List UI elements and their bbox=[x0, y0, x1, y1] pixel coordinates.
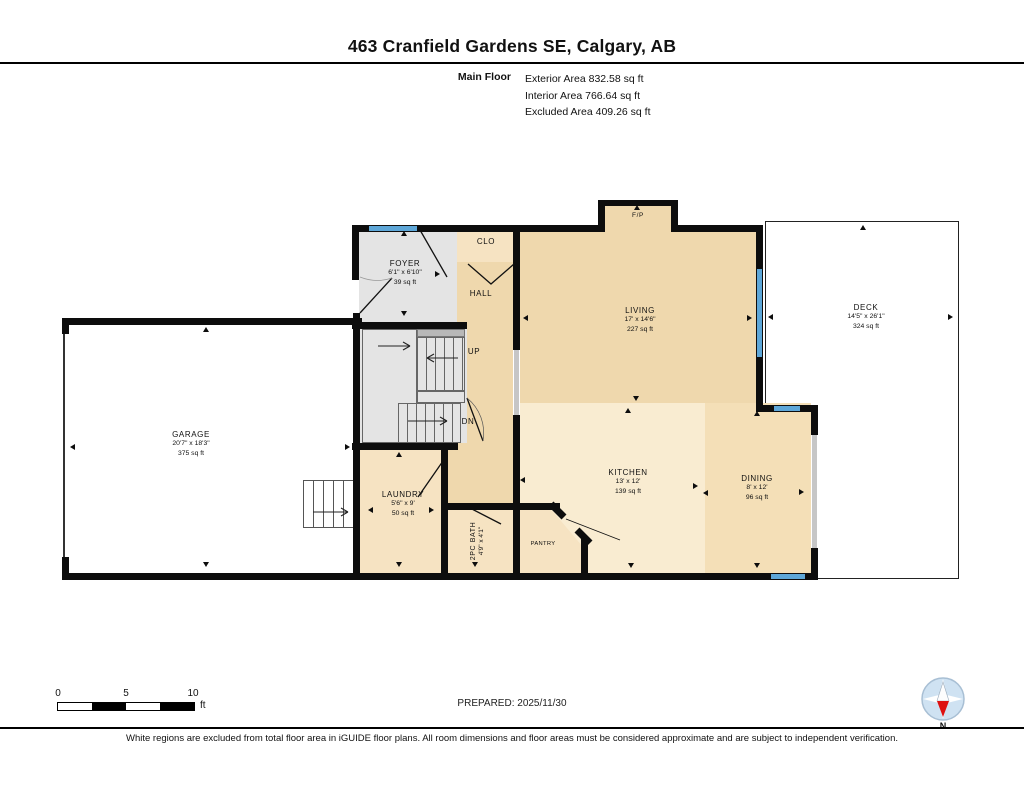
wall-segment bbox=[581, 538, 588, 573]
stair-landing-cap bbox=[417, 329, 465, 337]
dimension-arrow-icon bbox=[396, 562, 402, 567]
wall-segment bbox=[62, 557, 69, 573]
floorplan-canvas: FOYER 6'1" x 6'10" 39 sq ft CLO HALL UP … bbox=[0, 0, 1024, 791]
wall-segment bbox=[806, 573, 818, 580]
stairs-down bbox=[398, 403, 461, 443]
wall-segment bbox=[62, 318, 69, 334]
wall-segment bbox=[756, 358, 763, 412]
dimension-arrow-icon bbox=[799, 489, 804, 495]
wall-segment bbox=[513, 225, 520, 350]
stair-landing bbox=[417, 391, 465, 403]
compass: N bbox=[920, 676, 966, 734]
window-icon bbox=[770, 573, 806, 580]
dimension-arrow-icon bbox=[754, 411, 760, 416]
dimension-arrow-icon bbox=[625, 408, 631, 413]
dimension-arrow-icon bbox=[70, 444, 75, 450]
dimension-arrow-icon bbox=[520, 477, 525, 483]
room-label-kitchen: KITCHEN 13' x 12' 139 sq ft bbox=[608, 468, 647, 496]
prepared-date: PREPARED: 2025/11/30 bbox=[0, 698, 1024, 709]
dimension-arrow-icon bbox=[401, 311, 407, 316]
fireplace-label: F/P bbox=[632, 212, 644, 219]
wall-segment bbox=[443, 503, 560, 510]
compass-north-label: N bbox=[940, 721, 947, 731]
corridor-region bbox=[448, 450, 513, 503]
room-label-hall: HALL bbox=[470, 289, 492, 298]
room-label-foyer: FOYER 6'1" x 6'10" 39 sq ft bbox=[388, 259, 422, 287]
room-label-bath: 2PC BATH 4'9" x 4'1" bbox=[470, 522, 487, 561]
dimension-arrow-icon bbox=[633, 396, 639, 401]
dimension-arrow-icon bbox=[396, 452, 402, 457]
room-label-laundry: LAUNDRY 5'6" x 9' 50 sq ft bbox=[382, 490, 424, 518]
wall-segment bbox=[598, 200, 605, 232]
half-wall-railing bbox=[514, 350, 519, 415]
footer-disclaimer: White regions are excluded from total fl… bbox=[0, 733, 1024, 744]
room-label-closet: CLO bbox=[477, 237, 495, 246]
window-icon bbox=[756, 268, 763, 358]
dimension-arrow-icon bbox=[768, 314, 773, 320]
wall-segment bbox=[352, 225, 359, 280]
dimension-arrow-icon bbox=[203, 327, 209, 332]
wall-segment bbox=[678, 225, 763, 232]
stairs-up-label: UP bbox=[468, 347, 480, 356]
stairs-down-label: DN bbox=[462, 417, 475, 426]
wall-segment bbox=[756, 225, 763, 268]
room-label-dining: DINING 8' x 12' 96 sq ft bbox=[741, 474, 773, 502]
room-label-living: LIVING 17' x 14'6" 227 sq ft bbox=[624, 306, 655, 334]
dimension-arrow-icon bbox=[860, 225, 866, 230]
wall-segment bbox=[62, 573, 770, 580]
wall-segment bbox=[352, 322, 467, 329]
garage-steps bbox=[303, 480, 355, 528]
wall-segment bbox=[62, 318, 362, 325]
dimension-arrow-icon bbox=[634, 205, 640, 210]
dimension-arrow-icon bbox=[429, 507, 434, 513]
dimension-arrow-icon bbox=[435, 271, 440, 277]
window-icon bbox=[368, 225, 418, 232]
window-icon bbox=[773, 405, 801, 412]
dimension-arrow-icon bbox=[628, 563, 634, 568]
wall-segment bbox=[811, 548, 818, 573]
dimension-arrow-icon bbox=[754, 563, 760, 568]
floorplan-page: 463 Cranfield Gardens SE, Calgary, AB Ma… bbox=[0, 0, 1024, 791]
wall-segment bbox=[671, 200, 678, 232]
compass-icon bbox=[920, 676, 966, 722]
dimension-arrow-icon bbox=[523, 315, 528, 321]
room-label-deck: DECK 14'5" x 26'1" 324 sq ft bbox=[847, 303, 884, 331]
dimension-arrow-icon bbox=[703, 490, 708, 496]
stairs-up bbox=[417, 337, 465, 391]
garage-door-line bbox=[63, 334, 65, 557]
dimension-arrow-icon bbox=[203, 562, 209, 567]
wall-segment bbox=[513, 415, 520, 573]
wall-segment bbox=[520, 225, 598, 232]
dimension-arrow-icon bbox=[345, 444, 350, 450]
patio-door bbox=[812, 435, 817, 548]
dimension-arrow-icon bbox=[368, 507, 373, 513]
footer-divider bbox=[0, 727, 1024, 729]
wall-segment bbox=[811, 405, 818, 435]
dimension-arrow-icon bbox=[747, 315, 752, 321]
dimension-arrow-icon bbox=[472, 562, 478, 567]
dimension-arrow-icon bbox=[693, 483, 698, 489]
dimension-arrow-icon bbox=[948, 314, 953, 320]
room-label-garage: GARAGE 20'7" x 18'3" 375 sq ft bbox=[172, 430, 210, 458]
room-label-pantry: PANTRY bbox=[531, 541, 556, 547]
dimension-arrow-icon bbox=[401, 231, 407, 236]
